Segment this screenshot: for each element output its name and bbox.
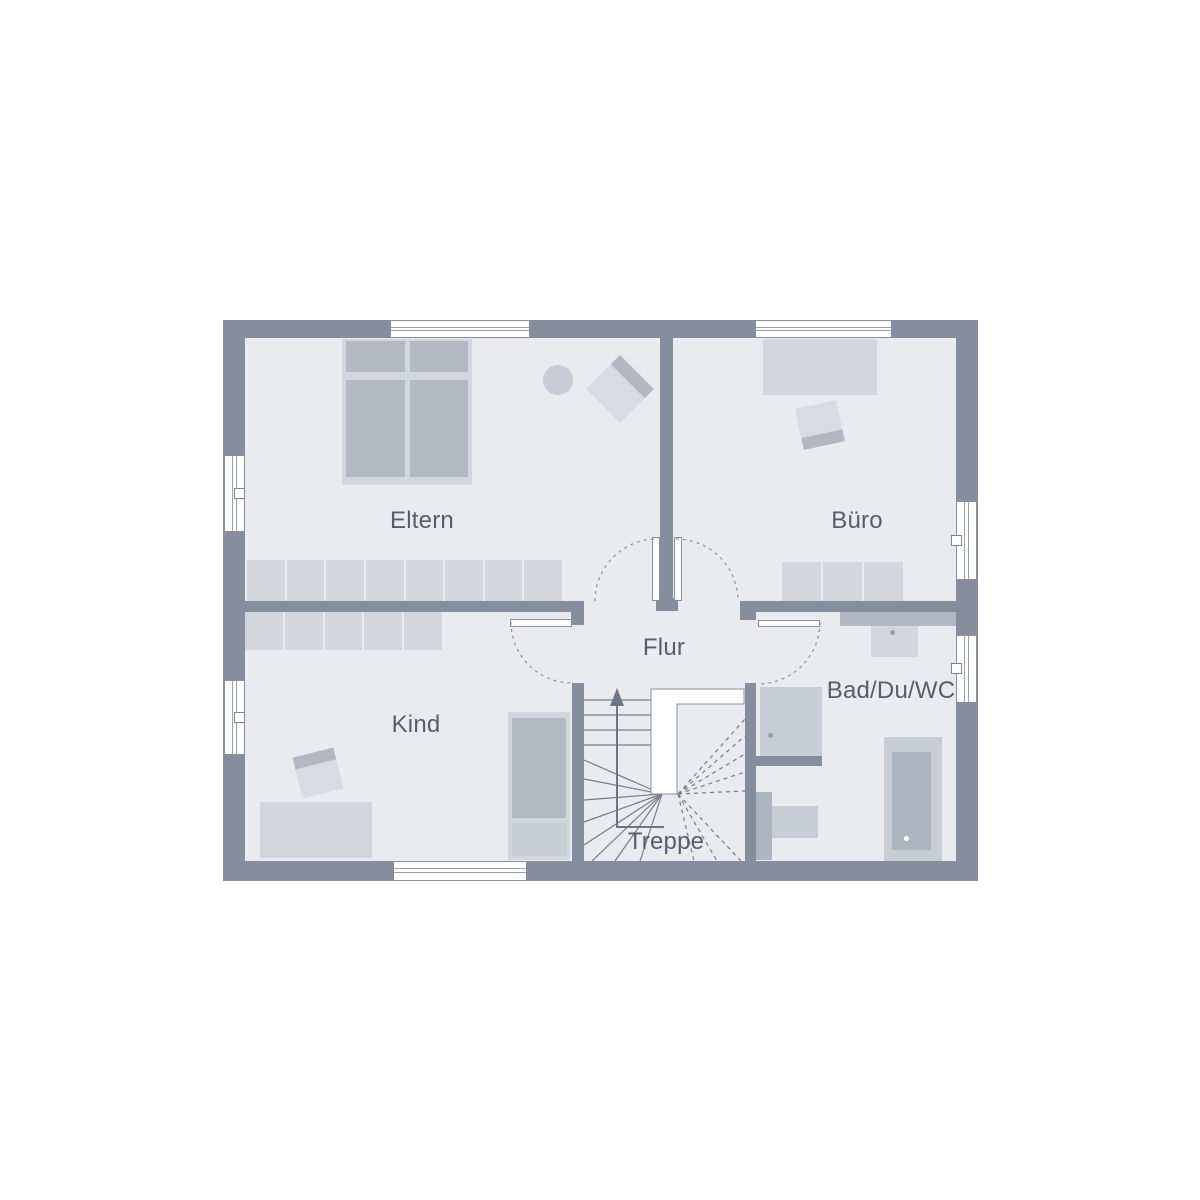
floor-plan: Eltern Büro Kind Flur Bad/Du/WC Treppe	[0, 0, 1200, 1200]
label-room-treppe: Treppe	[628, 828, 704, 856]
door-swing-eltern	[595, 539, 657, 601]
label-room-kind: Kind	[392, 711, 441, 739]
door-swing-bad	[758, 622, 820, 684]
door-swing-kind	[511, 622, 572, 683]
label-room-buero: Büro	[831, 507, 883, 535]
label-room-eltern: Eltern	[390, 507, 454, 535]
label-room-flur: Flur	[643, 634, 685, 662]
stairwell-void	[651, 689, 744, 794]
label-room-bad: Bad/Du/WC	[827, 677, 956, 705]
door-swing-arcs	[511, 539, 820, 684]
stairs-and-swings-overlay	[0, 0, 1200, 1200]
door-swing-buero	[676, 539, 738, 601]
